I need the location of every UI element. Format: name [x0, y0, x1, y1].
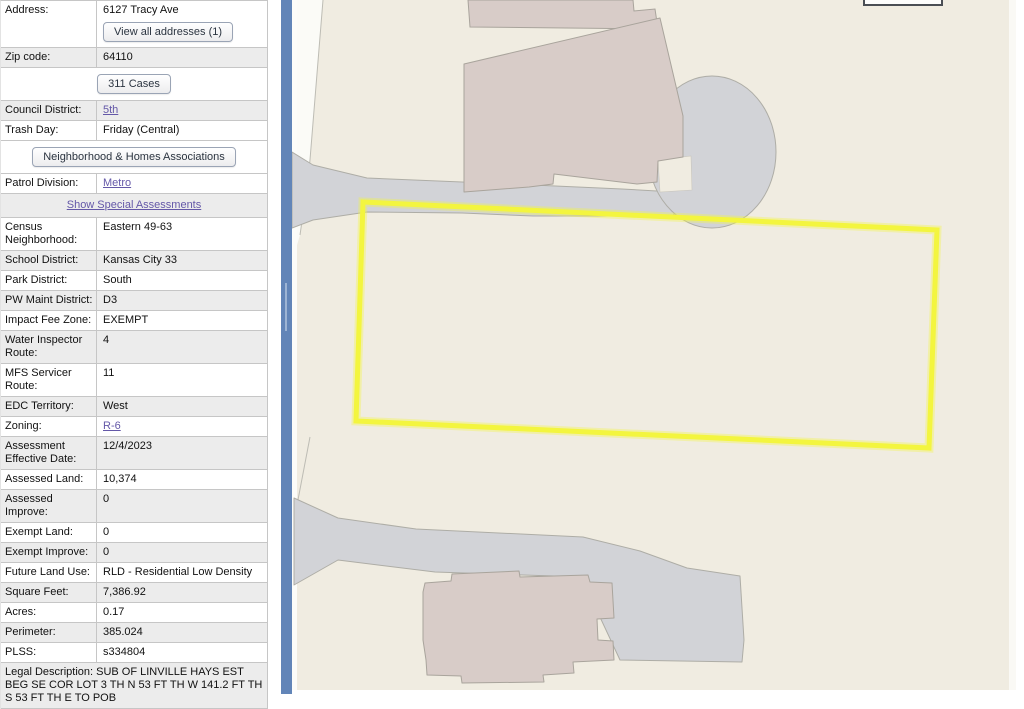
- info-row-plss: PLSS:s334804: [1, 643, 267, 663]
- info-row-perimeter: Perimeter:385.024: [1, 623, 267, 643]
- zip-code-value: 64110: [97, 48, 267, 67]
- address-label: Address:: [1, 1, 97, 47]
- splitter-grip-icon: [285, 283, 287, 331]
- info-row-cases-311: 311 Cases: [1, 68, 267, 101]
- water-inspector-route-label: Water Inspector Route:: [1, 331, 97, 363]
- legal-description-text: Legal Description: SUB OF LINVILLE HAYS …: [1, 663, 267, 708]
- info-row-zip-code: Zip code:64110: [1, 48, 267, 68]
- zoning-link[interactable]: R-6: [103, 420, 121, 432]
- info-row-exempt-land: Exempt Land:0: [1, 523, 267, 543]
- map-canvas[interactable]: [292, 0, 1016, 690]
- mfs-servicer-route-value: 11: [97, 364, 267, 396]
- exempt-improve-label: Exempt Improve:: [1, 543, 97, 562]
- square-feet-label: Square Feet:: [1, 583, 97, 602]
- info-row-impact-fee-zone: Impact Fee Zone:EXEMPT: [1, 311, 267, 331]
- council-district-label: Council District:: [1, 101, 97, 120]
- acres-label: Acres:: [1, 603, 97, 622]
- impact-fee-zone-value: EXEMPT: [97, 311, 267, 330]
- info-row-patrol-division: Patrol Division:Metro: [1, 174, 267, 194]
- info-row-acres: Acres:0.17: [1, 603, 267, 623]
- neighborhood-homes-associations-button[interactable]: Neighborhood & Homes Associations: [32, 147, 236, 167]
- trash-day-value: Friday (Central): [97, 121, 267, 140]
- parcel-info-panel: Address:6127 Tracy AveView all addresses…: [0, 0, 276, 694]
- impact-fee-zone-label: Impact Fee Zone:: [1, 311, 97, 330]
- info-row-legal-description: Legal Description: SUB OF LINVILLE HAYS …: [1, 663, 267, 709]
- info-row-water-inspector-route: Water Inspector Route:4: [1, 331, 267, 364]
- info-row-square-feet: Square Feet:7,386.92: [1, 583, 267, 603]
- park-district-label: Park District:: [1, 271, 97, 290]
- info-row-school-district: School District:Kansas City 33: [1, 251, 267, 271]
- square-feet-value: 7,386.92: [97, 583, 267, 602]
- exempt-land-label: Exempt Land:: [1, 523, 97, 542]
- address-value: 6127 Tracy AveView all addresses (1): [97, 1, 267, 47]
- info-row-assessed-land: Assessed Land:10,374: [1, 470, 267, 490]
- pw-maint-district-label: PW Maint District:: [1, 291, 97, 310]
- cases-311-button[interactable]: 311 Cases: [97, 74, 171, 94]
- patrol-division-label: Patrol Division:: [1, 174, 97, 193]
- show-special-assessments-link[interactable]: Show Special Assessments: [67, 198, 202, 213]
- info-row-assessment-effective-date: Assessment Effective Date:12/4/2023: [1, 437, 267, 470]
- trash-day-label: Trash Day:: [1, 121, 97, 140]
- info-row-pw-maint-district: PW Maint District:D3: [1, 291, 267, 311]
- perimeter-label: Perimeter:: [1, 623, 97, 642]
- info-row-assessed-improve: Assessed Improve:0: [1, 490, 267, 523]
- zip-code-label: Zip code:: [1, 48, 97, 67]
- info-row-trash-day: Trash Day:Friday (Central): [1, 121, 267, 141]
- assessment-effective-date-label: Assessment Effective Date:: [1, 437, 97, 469]
- council-district-link[interactable]: 5th: [103, 104, 118, 116]
- map-container: [292, 0, 1016, 690]
- school-district-label: School District:: [1, 251, 97, 270]
- assessment-effective-date-value: 12/4/2023: [97, 437, 267, 469]
- map-right-margin: [1009, 0, 1016, 690]
- info-row-mfs-servicer-route: MFS Servicer Route:11: [1, 364, 267, 397]
- future-land-use-value: RLD - Residential Low Density: [97, 563, 267, 582]
- patrol-division-value: Metro: [97, 174, 267, 193]
- patrol-division-link[interactable]: Metro: [103, 177, 131, 189]
- info-row-council-district: Council District:5th: [1, 101, 267, 121]
- census-neighborhood-value: Eastern 49-63: [97, 218, 267, 250]
- edc-territory-label: EDC Territory:: [1, 397, 97, 416]
- zoning-label: Zoning:: [1, 417, 97, 436]
- plss-value: s334804: [97, 643, 267, 662]
- mfs-servicer-route-label: MFS Servicer Route:: [1, 364, 97, 396]
- perimeter-value: 385.024: [97, 623, 267, 642]
- info-row-address: Address:6127 Tracy AveView all addresses…: [1, 1, 267, 48]
- info-row-future-land-use: Future Land Use:RLD - Residential Low De…: [1, 563, 267, 583]
- info-row-zoning: Zoning:R-6: [1, 417, 267, 437]
- exempt-land-value: 0: [97, 523, 267, 542]
- info-row-show-special-assessments: Show Special Assessments: [1, 194, 267, 218]
- info-row-park-district: Park District:South: [1, 271, 267, 291]
- future-land-use-label: Future Land Use:: [1, 563, 97, 582]
- school-district-value: Kansas City 33: [97, 251, 267, 270]
- info-row-exempt-improve: Exempt Improve:0: [1, 543, 267, 563]
- council-district-value: 5th: [97, 101, 267, 120]
- assessed-land-value: 10,374: [97, 470, 267, 489]
- edc-territory-value: West: [97, 397, 267, 416]
- assessed-land-label: Assessed Land:: [1, 470, 97, 489]
- water-inspector-route-value: 4: [97, 331, 267, 363]
- info-row-census-neighborhood: Census Neighborhood:Eastern 49-63: [1, 218, 267, 251]
- map-control-partial[interactable]: [864, 0, 942, 5]
- park-district-value: South: [97, 271, 267, 290]
- map-left-margin: [292, 0, 297, 690]
- acres-value: 0.17: [97, 603, 267, 622]
- census-neighborhood-label: Census Neighborhood:: [1, 218, 97, 250]
- info-row-edc-territory: EDC Territory:West: [1, 397, 267, 417]
- plss-label: PLSS:: [1, 643, 97, 662]
- exempt-improve-value: 0: [97, 543, 267, 562]
- view-all-addresses-button[interactable]: View all addresses (1): [103, 22, 233, 42]
- zoning-value: R-6: [97, 417, 267, 436]
- parcel-attribute-table: Address:6127 Tracy AveView all addresses…: [0, 0, 268, 709]
- assessed-improve-label: Assessed Improve:: [1, 490, 97, 522]
- assessed-improve-value: 0: [97, 490, 267, 522]
- map-base-notch: [658, 156, 692, 192]
- info-row-neighborhood-homes-associations: Neighborhood & Homes Associations: [1, 141, 267, 174]
- panel-splitter[interactable]: [281, 0, 292, 694]
- pw-maint-district-value: D3: [97, 291, 267, 310]
